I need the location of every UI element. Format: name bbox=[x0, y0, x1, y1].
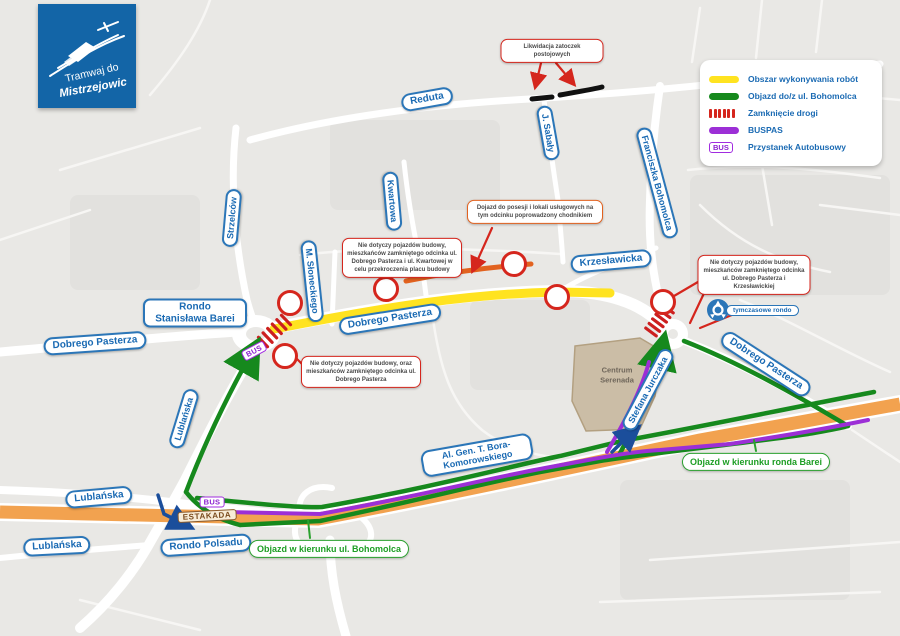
closure-hatch-icon bbox=[709, 109, 735, 118]
legend-item-buspas: BUSPAS bbox=[709, 124, 873, 136]
callout-detour-to-bohomolca: Objazd w kierunku ul. Bohomolca bbox=[249, 540, 409, 558]
tramwaj-do-mistrzejowic-logo: Tramwaj do Mistrzejowic bbox=[38, 4, 136, 108]
bus-stop-swatch: BUS bbox=[709, 142, 739, 153]
legend-item-bus-stop: BUS Przystanek Autobusowy bbox=[709, 141, 873, 153]
callout-pasterza-closure: Nie dotyczy pojazdów budowy, oraz mieszk… bbox=[301, 356, 421, 388]
callout-detour-to-barei: Objazd w kierunku ronda Barei bbox=[682, 453, 830, 471]
temporary-roundabout-badge: tymczasowe rondo bbox=[706, 298, 799, 322]
temporary-roundabout-label: tymczasowe rondo bbox=[726, 305, 799, 316]
legend-label: Obszar wykonywania robót bbox=[748, 74, 858, 84]
centrum-serenada-label: Centrum Serenada bbox=[584, 365, 650, 385]
legend-label: Zamknięcie drogi bbox=[748, 108, 818, 118]
detour-map: Tramwaj do Mistrzejowic Obszar wykonywan… bbox=[0, 0, 900, 636]
buspas-swatch bbox=[709, 127, 739, 134]
work-area-swatch bbox=[709, 76, 739, 83]
callout-sidewalk-access: Dojazd do posesji i lokali usługowych na… bbox=[467, 200, 603, 224]
callout-parking-removal: Likwidacja zatoczek postojowych bbox=[501, 39, 604, 63]
legend-label: BUSPAS bbox=[748, 125, 783, 135]
legend-label: Objazd do/z ul. Bohomolca bbox=[748, 91, 857, 101]
detour-swatch bbox=[709, 93, 739, 100]
bus-stop-icon: BUS bbox=[709, 142, 733, 153]
street-label-lublanska-h2: Lublańska bbox=[23, 535, 91, 556]
callout-krzeslawicka-closure: Nie dotyczy pojazdów budowy, mieszkańców… bbox=[698, 255, 811, 295]
legend-label: Przystanek Autobusowy bbox=[748, 142, 846, 152]
legend-item-closure: Zamknięcie drogi bbox=[709, 107, 873, 119]
bus-stop-badge-estakada: BUS bbox=[200, 497, 225, 508]
legend-item-detour: Objazd do/z ul. Bohomolca bbox=[709, 90, 873, 102]
closure-swatch bbox=[709, 109, 739, 118]
map-legend: Obszar wykonywania robót Objazd do/z ul.… bbox=[700, 60, 882, 166]
tram-icon: Tramwaj do Mistrzejowic bbox=[38, 4, 136, 108]
callout-kwartowa-closure: Nie dotyczy pojazdów budowy, mieszkańców… bbox=[342, 238, 462, 278]
label-rondo-barei: Rondo Stanisława Barei bbox=[143, 299, 247, 328]
legend-item-work-area: Obszar wykonywania robót bbox=[709, 73, 873, 85]
